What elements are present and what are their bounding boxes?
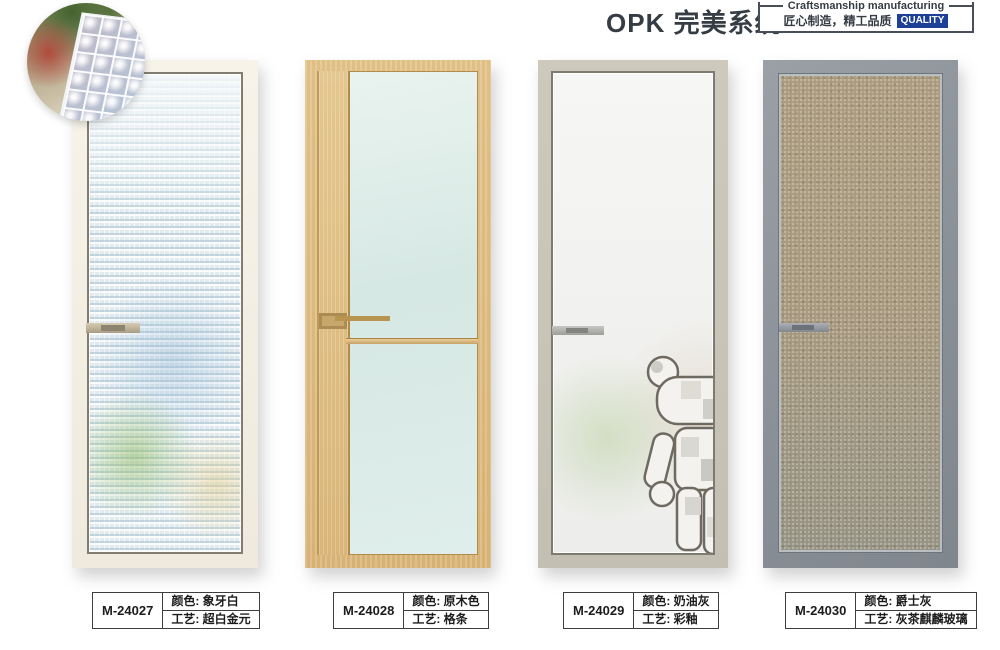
color-label: 颜色: [412, 594, 440, 608]
craft-label: 工艺: [864, 612, 892, 626]
color-spec: 颜色: 奶油灰 [634, 593, 717, 610]
product-label: M-24028 颜色: 原木色 工艺: 格条 [333, 592, 489, 629]
craft-value: 彩釉 [674, 612, 698, 626]
color-label: 颜色: [642, 594, 670, 608]
craft-value: 格条 [444, 612, 468, 626]
door-handle [779, 323, 829, 332]
spec-rows: 颜色: 奶油灰 工艺: 彩釉 [634, 593, 717, 628]
catalog-page: OPK 完美系统 Craftsmanship manufacturing 匠心制… [0, 0, 1000, 650]
product-label: M-24030 颜色: 爵士灰 工艺: 灰茶麒麟玻璃 [785, 592, 977, 629]
bearbrick-graphic [641, 347, 715, 555]
craft-label: 工艺: [412, 612, 440, 626]
color-spec: 颜色: 象牙白 [163, 593, 258, 610]
craft-spec: 工艺: 灰茶麒麟玻璃 [856, 610, 975, 628]
door-cross-rail [346, 338, 478, 344]
quality-badge: Craftsmanship manufacturing 匠心制造，精工品质 QU… [758, 2, 974, 33]
color-label: 颜色: [864, 594, 892, 608]
craft-spec: 工艺: 格条 [404, 610, 487, 628]
spec-rows: 颜色: 象牙白 工艺: 超白金元 [163, 593, 258, 628]
color-label: 颜色: [171, 594, 199, 608]
craft-value: 超白金元 [203, 612, 251, 626]
glass-texture-detail-inset [27, 3, 145, 121]
door-card-m-24030 [763, 60, 958, 568]
product-label: M-24027 颜色: 象牙白 工艺: 超白金元 [92, 592, 260, 629]
door-card-m-24027 [72, 60, 258, 568]
craft-value: 灰茶麒麟玻璃 [896, 612, 968, 626]
color-spec: 颜色: 原木色 [404, 593, 487, 610]
color-value: 爵士灰 [896, 594, 932, 608]
color-value: 奶油灰 [674, 594, 710, 608]
spec-rows: 颜色: 原木色 工艺: 格条 [404, 593, 487, 628]
door-glass-frosted-white [551, 71, 715, 555]
craft-label: 工艺: [642, 612, 670, 626]
door-card-m-24028 [305, 60, 491, 568]
diamond-glass-sheet [57, 13, 145, 121]
page-title: OPK 完美系统 [606, 3, 782, 40]
craft-spec: 工艺: 彩釉 [634, 610, 717, 628]
color-value: 原木色 [444, 594, 480, 608]
craft-spec: 工艺: 超白金元 [163, 610, 258, 628]
door-handle [86, 323, 140, 333]
door-glass-diamond-texture [87, 72, 243, 554]
badge-row-en: Craftsmanship manufacturing [760, 0, 972, 11]
color-spec: 颜色: 爵士灰 [856, 593, 975, 610]
spec-rows: 颜色: 爵士灰 工艺: 灰茶麒麟玻璃 [856, 593, 975, 628]
door-card-m-24029 [538, 60, 728, 568]
model-number: M-24029 [564, 593, 634, 628]
model-number: M-24027 [93, 593, 163, 628]
model-number: M-24030 [786, 593, 856, 628]
door-glass-kirin-texture [778, 73, 943, 553]
door-handle [319, 313, 347, 329]
product-label: M-24029 颜色: 奶油灰 工艺: 彩釉 [563, 592, 719, 629]
model-number: M-24028 [334, 593, 404, 628]
door-handle [552, 326, 604, 335]
quality-tag: QUALITY [897, 14, 949, 28]
color-value: 象牙白 [203, 594, 239, 608]
badge-english-text: Craftsmanship manufacturing [783, 0, 949, 12]
badge-chinese-text: 匠心制造，精工品质 [784, 12, 892, 29]
badge-row-cn: 匠心制造，精工品质 QUALITY [760, 12, 972, 29]
door-glass-frosted-green [346, 71, 478, 555]
craft-label: 工艺: [171, 612, 199, 626]
